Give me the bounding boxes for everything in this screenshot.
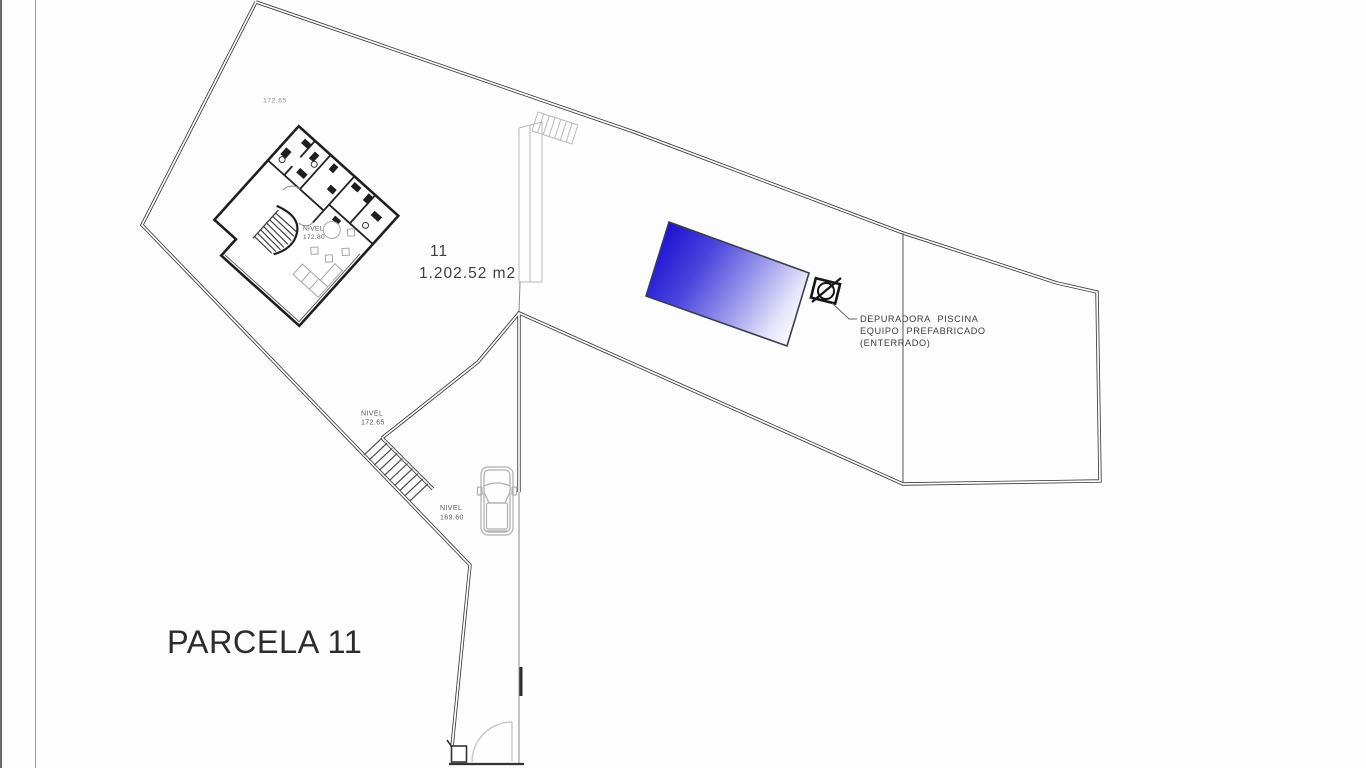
leader-line (832, 303, 857, 319)
elevation-label: 172.65 (263, 98, 287, 105)
site-plan-sheet: 172.65 11 1.202.52 m2 NIVEL 172.80 NIVEL… (0, 0, 1366, 768)
site-plan-drawing: 172.65 11 1.202.52 m2 NIVEL 172.80 NIVEL… (0, 0, 1366, 768)
nivel-house-label: NIVEL 172.80 (303, 226, 325, 242)
svg-text:169.60: 169.60 (440, 515, 464, 522)
svg-text:(ENTERRADO): (ENTERRADO) (860, 338, 930, 348)
svg-text:NIVEL: NIVEL (440, 505, 462, 512)
upper-exterior-stairs (532, 112, 578, 144)
svg-text:172.80: 172.80 (303, 234, 325, 241)
svg-text:NIVEL: NIVEL (303, 226, 324, 233)
svg-text:172.65: 172.65 (361, 420, 385, 427)
house-floor-plan (200, 126, 399, 326)
entrance-gate (447, 722, 524, 764)
exterior-staircase (364, 438, 428, 501)
svg-text:NIVEL: NIVEL (361, 411, 383, 418)
nivel-terrace-label: NIVEL 172.65 (361, 411, 385, 427)
nivel-driveway-label: NIVEL 169.60 (440, 505, 464, 522)
screen-left-edge (0, 0, 2, 768)
pool-equipment-note: DEPURADORA PISCINA EQUIPO PREFABRICADO (… (860, 314, 986, 348)
retaining-wall (519, 122, 542, 313)
gate-swing-arc (472, 722, 512, 762)
parcel-title: PARCELA 11 (167, 624, 362, 660)
car-top-view (478, 467, 517, 535)
parcel-area-label: 1.202.52 m2 (419, 265, 516, 282)
svg-text:DEPURADORA PISCINA: DEPURADORA PISCINA (860, 314, 979, 324)
svg-text:EQUIPO PREFABRICADO: EQUIPO PREFABRICADO (860, 326, 986, 336)
swimming-pool (646, 222, 809, 346)
pool-equipment-symbol (811, 278, 857, 319)
parcel-number-label: 11 (430, 243, 448, 260)
gate-pillar (452, 746, 467, 762)
